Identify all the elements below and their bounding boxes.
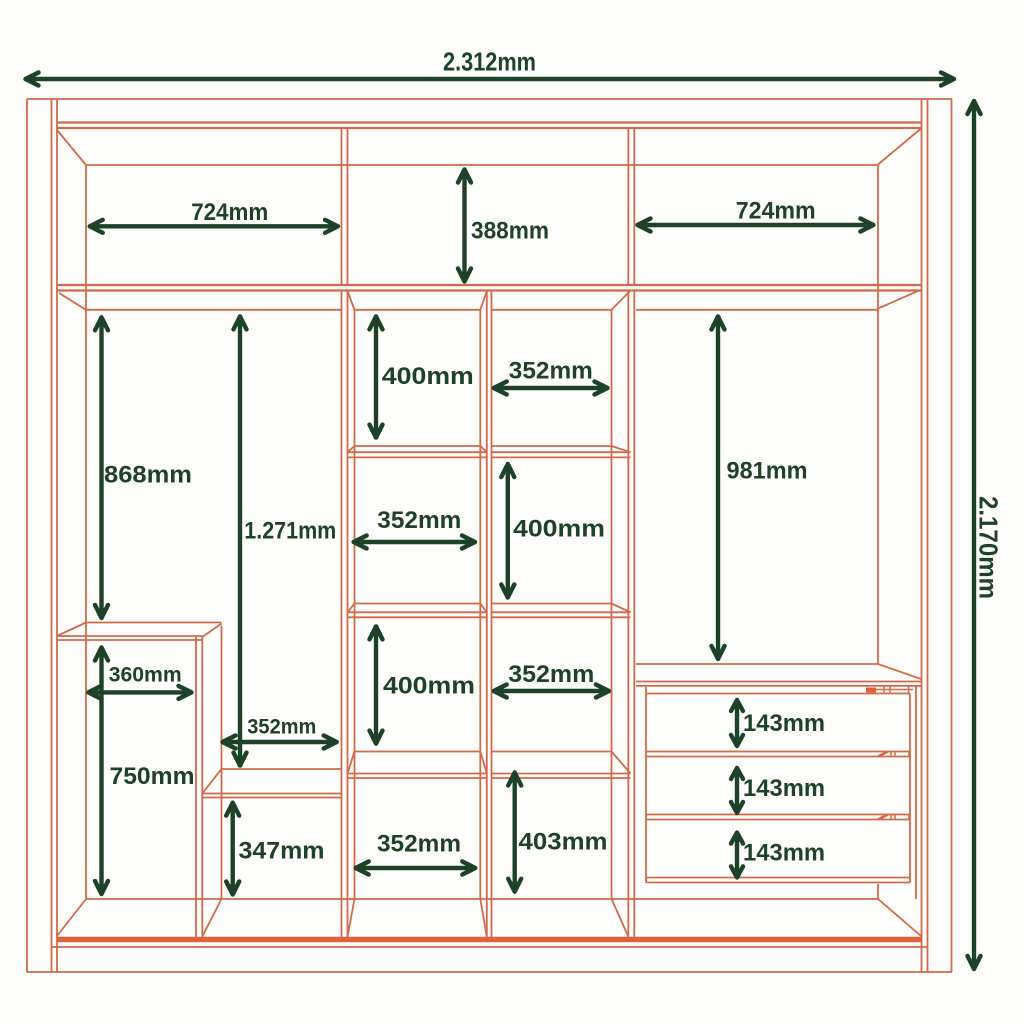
svg-text:403mm: 403mm bbox=[519, 829, 608, 856]
svg-text:1.271mm: 1.271mm bbox=[244, 518, 336, 545]
svg-text:400mm: 400mm bbox=[513, 516, 605, 543]
svg-text:724mm: 724mm bbox=[736, 197, 816, 224]
svg-text:750mm: 750mm bbox=[110, 763, 195, 790]
svg-text:388mm: 388mm bbox=[471, 218, 549, 245]
svg-text:352mm: 352mm bbox=[377, 507, 461, 534]
svg-text:981mm: 981mm bbox=[727, 458, 808, 485]
svg-text:724mm: 724mm bbox=[191, 199, 268, 226]
svg-text:2.170mm: 2.170mm bbox=[973, 496, 1003, 599]
svg-text:352mm: 352mm bbox=[377, 831, 461, 858]
svg-text:360mm: 360mm bbox=[109, 663, 182, 687]
svg-text:400mm: 400mm bbox=[383, 673, 475, 700]
svg-text:352mm: 352mm bbox=[508, 661, 594, 688]
svg-text:868mm: 868mm bbox=[104, 462, 192, 489]
svg-text:400mm: 400mm bbox=[382, 363, 474, 390]
svg-text:143mm: 143mm bbox=[743, 710, 825, 737]
svg-text:347mm: 347mm bbox=[239, 838, 325, 865]
svg-text:143mm: 143mm bbox=[743, 840, 825, 867]
svg-text:143mm: 143mm bbox=[743, 775, 825, 802]
svg-text:2.312mm: 2.312mm bbox=[443, 47, 536, 77]
svg-text:352mm: 352mm bbox=[247, 715, 316, 739]
svg-text:352mm: 352mm bbox=[509, 357, 593, 384]
